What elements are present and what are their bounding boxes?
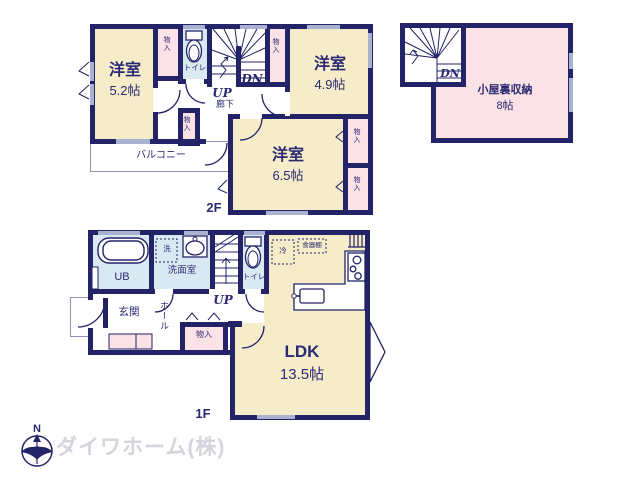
- closet-1f-label: 物入: [186, 331, 222, 340]
- closet-2f-b-label: 物入: [272, 38, 279, 54]
- closet-2f-e-label: 物入: [353, 176, 360, 192]
- compass-north-label: N: [31, 423, 43, 435]
- hallway-label: 廊下: [211, 100, 239, 110]
- closet-2f-d-label: 物入: [353, 128, 360, 144]
- washroom-label: 洗面室: [158, 266, 206, 276]
- stairs-dn-2f-label: DN: [239, 73, 265, 86]
- bedroom-south-size: 6.5帖: [262, 169, 314, 183]
- toilet-room-1f: [238, 230, 269, 294]
- ldk-name: LDK: [270, 343, 334, 362]
- fridge-label: 冷: [276, 247, 290, 255]
- compass-icon: [21, 434, 53, 466]
- closet-2f-c-label: 物入: [183, 116, 190, 132]
- balcony-label: バルコニー: [125, 150, 197, 161]
- toilet-2f-label: トイレ: [180, 64, 210, 72]
- washroom: [149, 230, 215, 294]
- bedroom-south-name: 洋室: [262, 147, 314, 165]
- hall-label: ホール: [159, 301, 168, 331]
- bedroom-east-size: 4.9帖: [305, 78, 355, 92]
- ldk-size: 13.5帖: [270, 367, 334, 384]
- bedroom-east-name: 洋室: [305, 56, 355, 74]
- bay-window-mark: [370, 322, 385, 382]
- bedroom-west-size: 5.2帖: [100, 84, 150, 98]
- entrance-label: 玄関: [112, 307, 146, 319]
- toilet-1f-label: トイレ: [240, 273, 268, 281]
- floor-plan: 洋室 5.2帖 物入 トイレ UP DN 廊下 物入 洋室 4.9帖 物入 洋室…: [0, 0, 640, 480]
- bath-ub-label: UB: [108, 271, 136, 283]
- floor2-label: 2F: [202, 201, 226, 215]
- attic-storage-size: 8帖: [465, 100, 545, 112]
- stairs-dn-attic-label: DN: [437, 68, 463, 80]
- cupboard-label: 食器棚: [299, 242, 325, 249]
- floor1-label: 1F: [191, 407, 215, 421]
- closet-2f-a-label: 物入: [163, 36, 170, 52]
- company-logo-text: ダイワホーム(株): [56, 436, 241, 459]
- washer-label: 洗: [160, 245, 174, 253]
- bedroom-west-name: 洋室: [100, 62, 150, 80]
- stairs-up-1f-label: UP: [210, 294, 236, 307]
- bathroom-ub: [88, 230, 154, 294]
- attic-storage-name: 小屋裏収納: [465, 84, 545, 96]
